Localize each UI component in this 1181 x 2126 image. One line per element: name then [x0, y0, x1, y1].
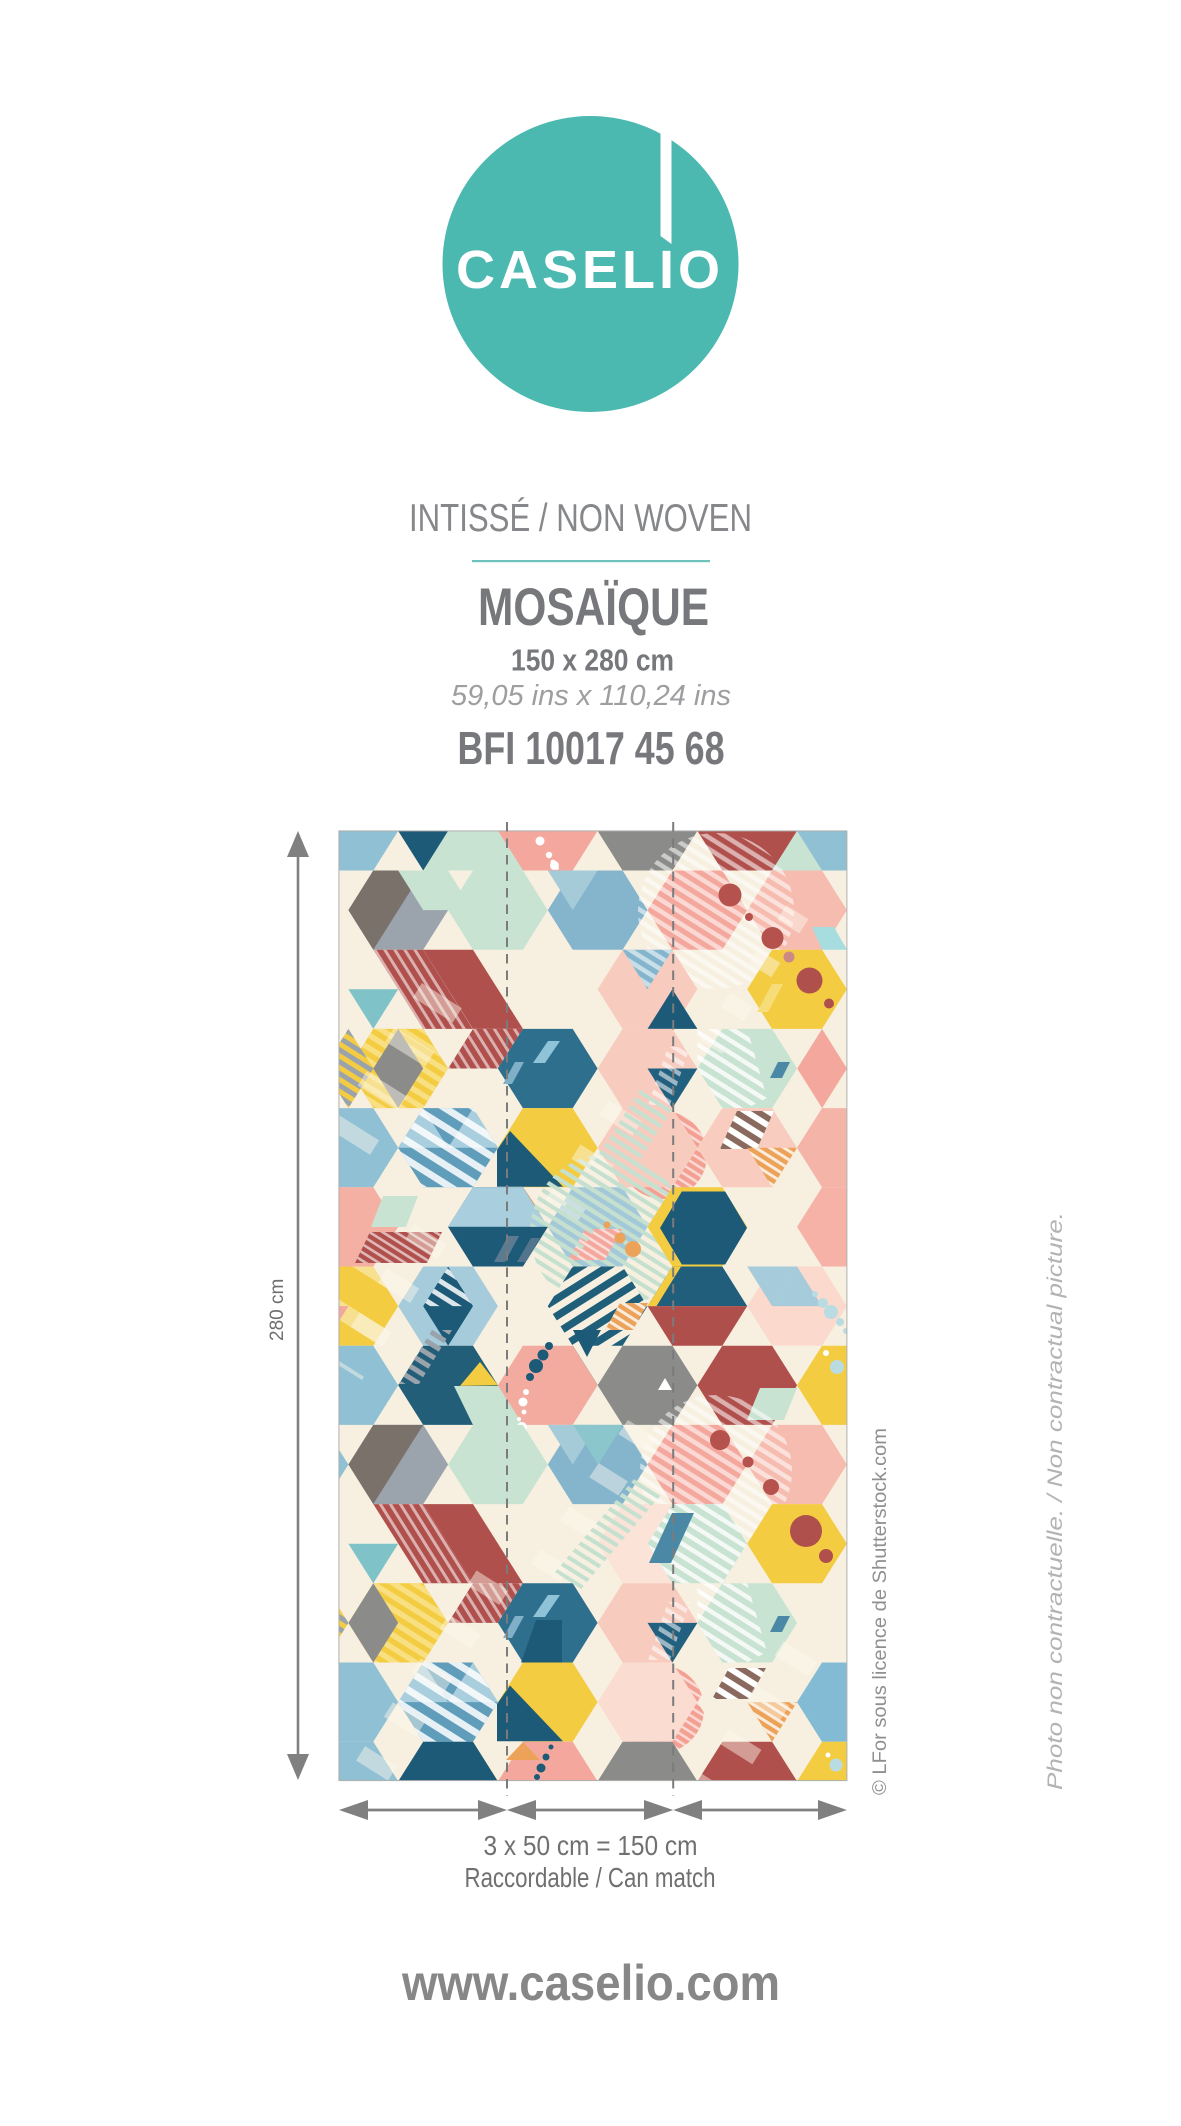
svg-text:MOSAÏQUE: MOSAÏQUE — [478, 578, 709, 637]
svg-text:3 x 50 cm = 150 cm: 3 x 50 cm = 150 cm — [484, 1830, 698, 1861]
svg-text:59,05 ins x 110,24 ins: 59,05 ins x 110,24 ins — [451, 680, 731, 712]
svg-text:Photo non contractuelle. / Non: Photo non contractuelle. / Non contractu… — [1044, 1212, 1067, 1790]
svg-text:280 cm: 280 cm — [267, 1279, 288, 1341]
svg-text:INTISSÉ / NON WOVEN: INTISSÉ / NON WOVEN — [409, 497, 752, 540]
svg-text:CASELIO: CASELIO — [456, 240, 724, 300]
svg-text:© LFor sous licence de Shutter: © LFor sous licence de Shutterstock.com — [870, 1428, 891, 1795]
svg-text:www.caselio.com: www.caselio.com — [401, 1955, 780, 2011]
svg-text:BFI 10017 45 68: BFI 10017 45 68 — [458, 722, 725, 774]
svg-text:150 x 280 cm: 150 x 280 cm — [511, 643, 674, 678]
svg-text:Raccordable / Can match: Raccordable / Can match — [465, 1862, 716, 1893]
